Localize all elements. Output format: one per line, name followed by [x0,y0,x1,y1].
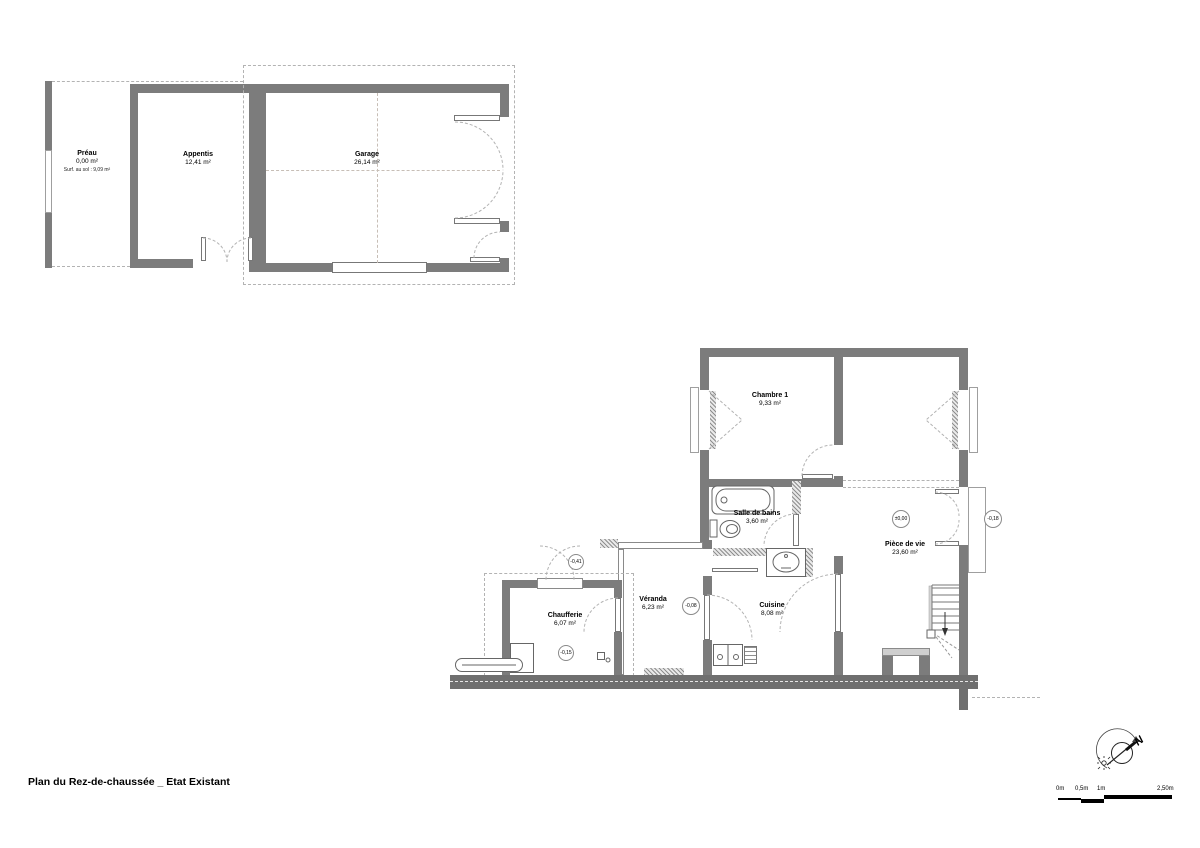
room-label-chaufferie: Chaufferie 6,07 m² [535,611,595,629]
wall-garage-right-mid [500,221,509,232]
preau-window [45,150,52,213]
wall-veranda-west-insulated [600,539,618,548]
compass-arc-arrowhead [1132,736,1140,742]
sdb-door-leaf [793,514,799,546]
room-label-salle-de-bains: Salle de bains 3,60 m² [733,509,781,527]
room-name: Cuisine [742,601,802,610]
fireplace-pier-left [882,656,893,675]
garage-sectional-door [332,262,427,273]
wall-garage-top [266,84,509,93]
kitchen-grille [744,646,757,664]
room-name: Chambre 1 [740,391,800,400]
wall-house-left-mid [700,450,709,479]
garage-axis-vertical [377,93,378,263]
kitchen-base-unit [713,644,743,666]
room-label-veranda: Véranda 6,23 m² [623,595,683,613]
room-area: 8,08 m² [742,610,802,618]
scale-label-0: 0m [1056,786,1064,792]
room-area: 0,00 m² [57,158,117,166]
kitchen-counter-edge [712,568,758,572]
wall-hall [700,479,834,487]
compass-needle-north [1126,740,1138,750]
appentis-door-leaf-left [201,237,206,261]
room-name: Garage [337,150,397,159]
beam-line-2 [843,487,959,488]
floor-drain [597,652,605,660]
wall-chaufferie-right-lower [614,632,622,675]
scale-bar-segment-3 [1104,795,1172,799]
room-area: 26,14 m² [337,159,397,167]
wall-chaufferie-right-upper [614,580,622,598]
room-name: Appentis [168,150,228,159]
beam-line-1 [843,480,959,481]
chaufferie-door-leaf [615,598,621,632]
wall-appentis-left [130,84,138,268]
wall-terrace [450,675,978,689]
garage-service-door-leaf [470,257,500,262]
compass-arc [1096,729,1136,768]
wall-preau-left-top [45,81,52,150]
scale-bar-segment-2 [1081,799,1104,803]
chambre1-radiator [710,391,716,449]
wall-garage-right-top [500,93,509,117]
level-value: ±0,00 [895,516,907,522]
veranda-glazed-wall-top [618,542,703,549]
garage-axis-horizontal [266,170,500,171]
wall-cuisine-west-upper [703,576,712,595]
level-value: -0,18 [987,516,998,522]
level-marker-exterior-east: -0,18 [984,510,1002,528]
garage-door-leaf-bottom [454,218,500,224]
compass-needle [1107,746,1130,765]
wall-sink-alcove-left [713,548,766,556]
chaufferie-window [537,578,583,589]
room-label-appentis: Appentis 12,41 m² [168,150,228,168]
drawing-title: Plan du Rez-de-chaussée _ Etat Existant [28,776,230,788]
scale-label-1: 1m [1097,786,1105,792]
compass-north-label: N [1132,733,1146,748]
pdv-door-leaf [835,574,841,632]
level-marker-veranda: -0,08 [682,597,700,615]
drawing-overlay: N [0,0,1200,848]
room-area: 3,60 m² [733,518,781,526]
room-label-garage: Garage 26,14 m² [337,150,397,168]
level-marker-chaufferie: -0,15 [558,645,574,661]
wall-house-right-mid [959,450,968,487]
room-label-cuisine: Cuisine 8,08 m² [742,601,802,619]
room-area: 23,60 m² [875,549,935,557]
veranda-floor-grille [644,668,684,675]
sun-icon [1097,756,1111,770]
level-value: -0,41 [570,559,581,565]
east-door-leaf-bottom [935,541,959,546]
boundary-dashed-line [972,697,1040,698]
garage-roof-outline [243,65,515,285]
wall-sdb-left [700,487,709,548]
wall-cuisine-east-lower [834,632,843,676]
garage-door-leaf-top [454,115,500,121]
room-name: Préau [57,149,117,158]
chambre1-door-leaf [802,474,833,479]
room-area: 6,23 m² [623,604,683,612]
wall-sdb-right-insulated [792,481,801,514]
wall-cuisine-west-lower [703,640,712,676]
room-name: Véranda [623,595,683,604]
east-radiator [952,391,958,449]
wall-right-extension [959,689,968,710]
wall-house-top [700,348,968,357]
chambre1-window-sill [690,387,699,453]
room-name: Chaufferie [535,611,595,620]
wall-garage-right-bottom [500,258,509,272]
fireplace-pier-right [919,656,930,675]
preau-roof-edge-bottom [52,266,130,267]
scale-bar-segment-1 [1058,798,1081,800]
boiler-tank [455,658,523,672]
level-marker-piece-de-vie: ±0,00 [892,510,910,528]
floor-plan-canvas: N Préau 0,00 m² Surf. au sol : 9,09 m² A… [0,0,1200,848]
east-door-leaf-top [935,489,959,494]
wall-house-right-upper [959,357,968,390]
cuisine-door-leaf [704,595,710,640]
scale-label-05: 0,5m [1075,786,1088,792]
wall-cuisine-east-upper [834,556,843,574]
wall-house-left-upper [700,357,709,390]
compass-circle [1112,743,1133,764]
vanity-unit [766,548,806,577]
scale-label-250: 2,50m [1157,786,1174,792]
level-value: -0,15 [560,650,571,656]
wall-appentis-bottom [138,259,193,268]
room-area: 12,41 m² [168,159,228,167]
wall-house-right-lower [959,545,968,676]
room-area: 6,07 m² [535,620,595,628]
wall-sink-alcove-right [806,548,813,577]
terrace-hidden-line [450,681,978,682]
compass: N [1096,729,1147,770]
staircase [927,585,959,658]
east-window-sill [969,387,978,453]
level-value: -0,08 [685,603,696,609]
east-door-platform [968,487,986,573]
appentis-door-leaf-right [248,237,253,261]
room-label-chambre1: Chambre 1 9,33 m² [740,391,800,409]
level-marker-chaufferie-exterior: -0,41 [568,554,584,570]
wall-appentis-top [138,84,250,93]
wall-preau-left-bottom [45,213,52,268]
room-area: 9,33 m² [740,400,800,408]
preau-roof-edge-top [52,81,243,82]
room-name: Pièce de vie [875,540,935,549]
fireplace-lintel [882,648,930,656]
wall-chambre1-partition [834,357,843,445]
room-label-piece-de-vie: Pièce de vie 23,60 m² [875,540,935,558]
room-name: Salle de bains [733,509,781,518]
room-label-preau: Préau 0,00 m² Surf. au sol : 9,09 m² [57,149,117,173]
wall-chambre1-partition-block [834,476,843,487]
room-note: Surf. au sol : 9,09 m² [57,167,117,174]
